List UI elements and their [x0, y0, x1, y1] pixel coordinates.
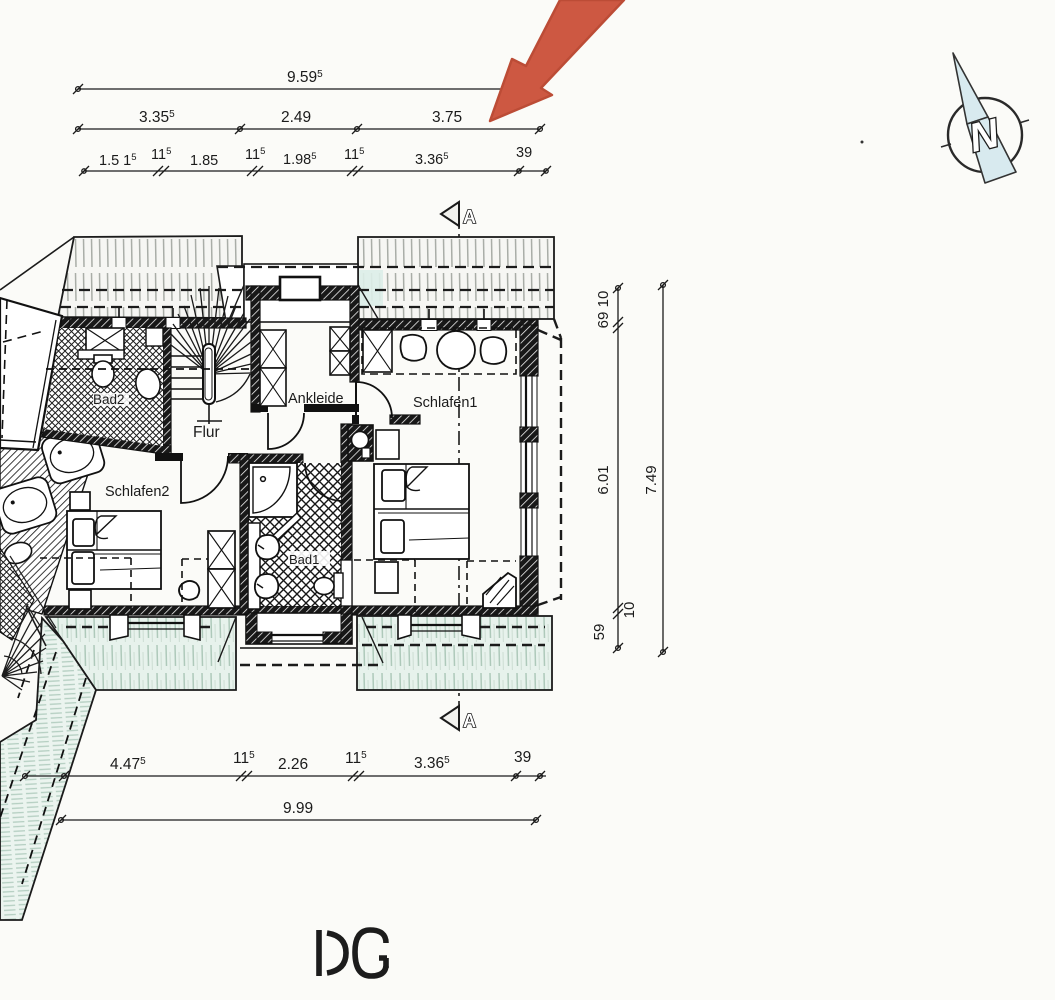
svg-text:1.85: 1.85 — [190, 153, 218, 169]
svg-text:39: 39 — [516, 145, 532, 161]
svg-text:N: N — [965, 111, 1005, 161]
svg-text:115: 115 — [344, 146, 364, 163]
svg-text:9.595: 9.595 — [287, 69, 323, 86]
svg-text:39: 39 — [514, 749, 531, 766]
svg-text:Bad1: Bad1 — [289, 552, 319, 567]
svg-text:3.365: 3.365 — [414, 755, 450, 772]
svg-text:115: 115 — [233, 750, 255, 767]
svg-text:69: 69 — [595, 312, 612, 329]
svg-text:Ankleide: Ankleide — [288, 391, 344, 407]
svg-text:115: 115 — [245, 146, 265, 163]
svg-text:A: A — [463, 207, 476, 227]
svg-text:3.355: 3.355 — [139, 109, 175, 126]
svg-text:59: 59 — [591, 624, 608, 641]
svg-text:4.475: 4.475 — [110, 756, 146, 773]
svg-text:A: A — [463, 711, 476, 731]
svg-text:Schlafen2: Schlafen2 — [105, 484, 170, 500]
svg-text:115: 115 — [151, 146, 171, 163]
svg-text:1.985: 1.985 — [283, 151, 317, 168]
svg-text:Bad2: Bad2 — [93, 392, 125, 407]
svg-text:3.365: 3.365 — [415, 151, 449, 168]
svg-text:7.49: 7.49 — [643, 465, 660, 494]
svg-text:10: 10 — [621, 602, 638, 619]
svg-text:Schlafen1: Schlafen1 — [413, 395, 478, 411]
svg-text:2.49: 2.49 — [281, 109, 311, 126]
svg-text:6.01: 6.01 — [595, 465, 612, 494]
svg-text:10: 10 — [595, 291, 612, 308]
svg-text:9.99: 9.99 — [283, 800, 313, 817]
svg-text:115: 115 — [345, 750, 367, 767]
svg-text:2.26: 2.26 — [278, 756, 308, 773]
svg-text:3.75: 3.75 — [432, 109, 462, 126]
svg-text:1.5 15: 1.5 15 — [99, 152, 137, 169]
svg-text:Flur: Flur — [193, 424, 220, 441]
